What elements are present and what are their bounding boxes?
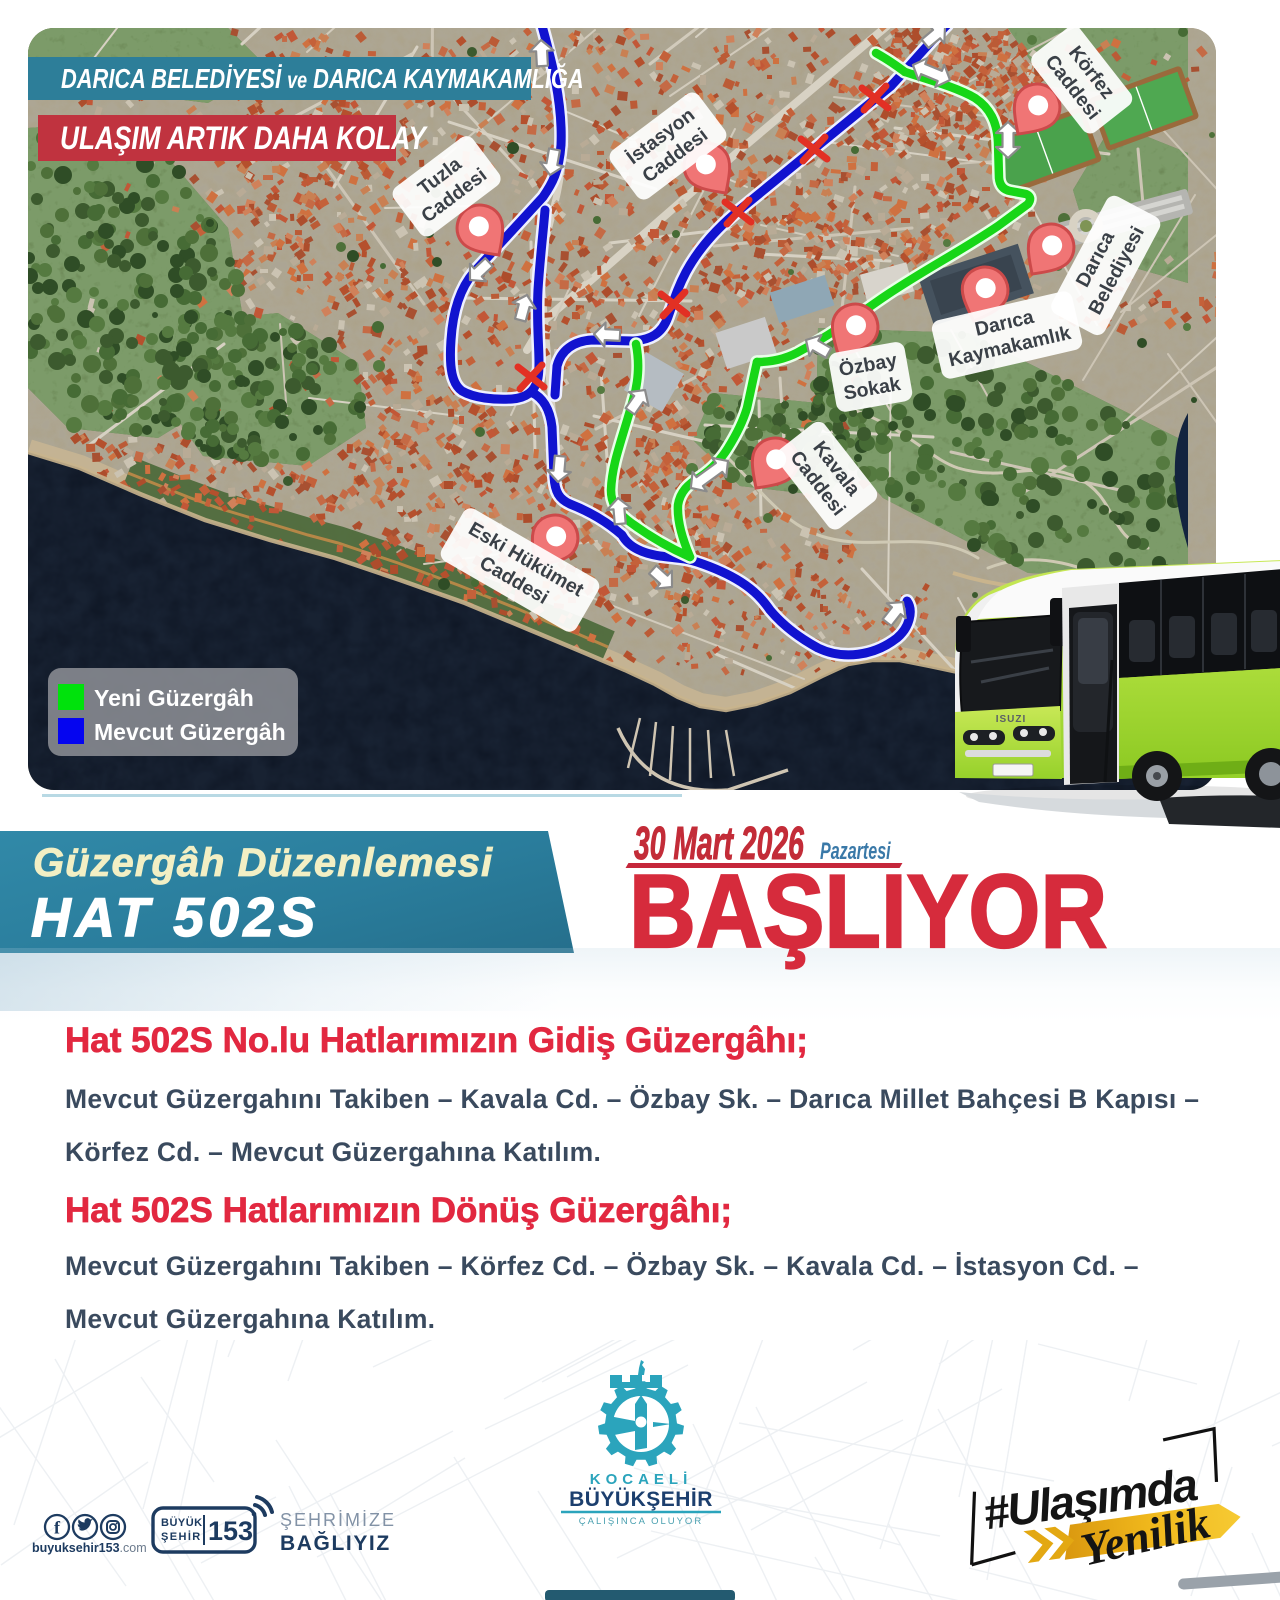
svg-text:Mevcut Güzergâh: Mevcut Güzergâh (94, 719, 286, 745)
svg-text:ISUZI: ISUZI (996, 714, 1027, 725)
svg-text:Yeni Güzergâh: Yeni Güzergâh (94, 685, 254, 711)
svg-text:BÜYÜKŞEHİR: BÜYÜKŞEHİR (569, 1488, 713, 1511)
svg-text:ŞEHİR: ŞEHİR (161, 1530, 202, 1543)
svg-text:BÜYÜK: BÜYÜK (161, 1516, 203, 1529)
svg-text:f: f (54, 1518, 61, 1538)
svg-text:buyuksehir153.com: buyuksehir153.com (32, 1541, 147, 1555)
svg-text:153: 153 (208, 1516, 253, 1546)
svg-text:KOCAELİ: KOCAELİ (590, 1471, 693, 1488)
svg-text:ÇALIŞINCA OLUYOR: ÇALIŞINCA OLUYOR (579, 1516, 703, 1527)
